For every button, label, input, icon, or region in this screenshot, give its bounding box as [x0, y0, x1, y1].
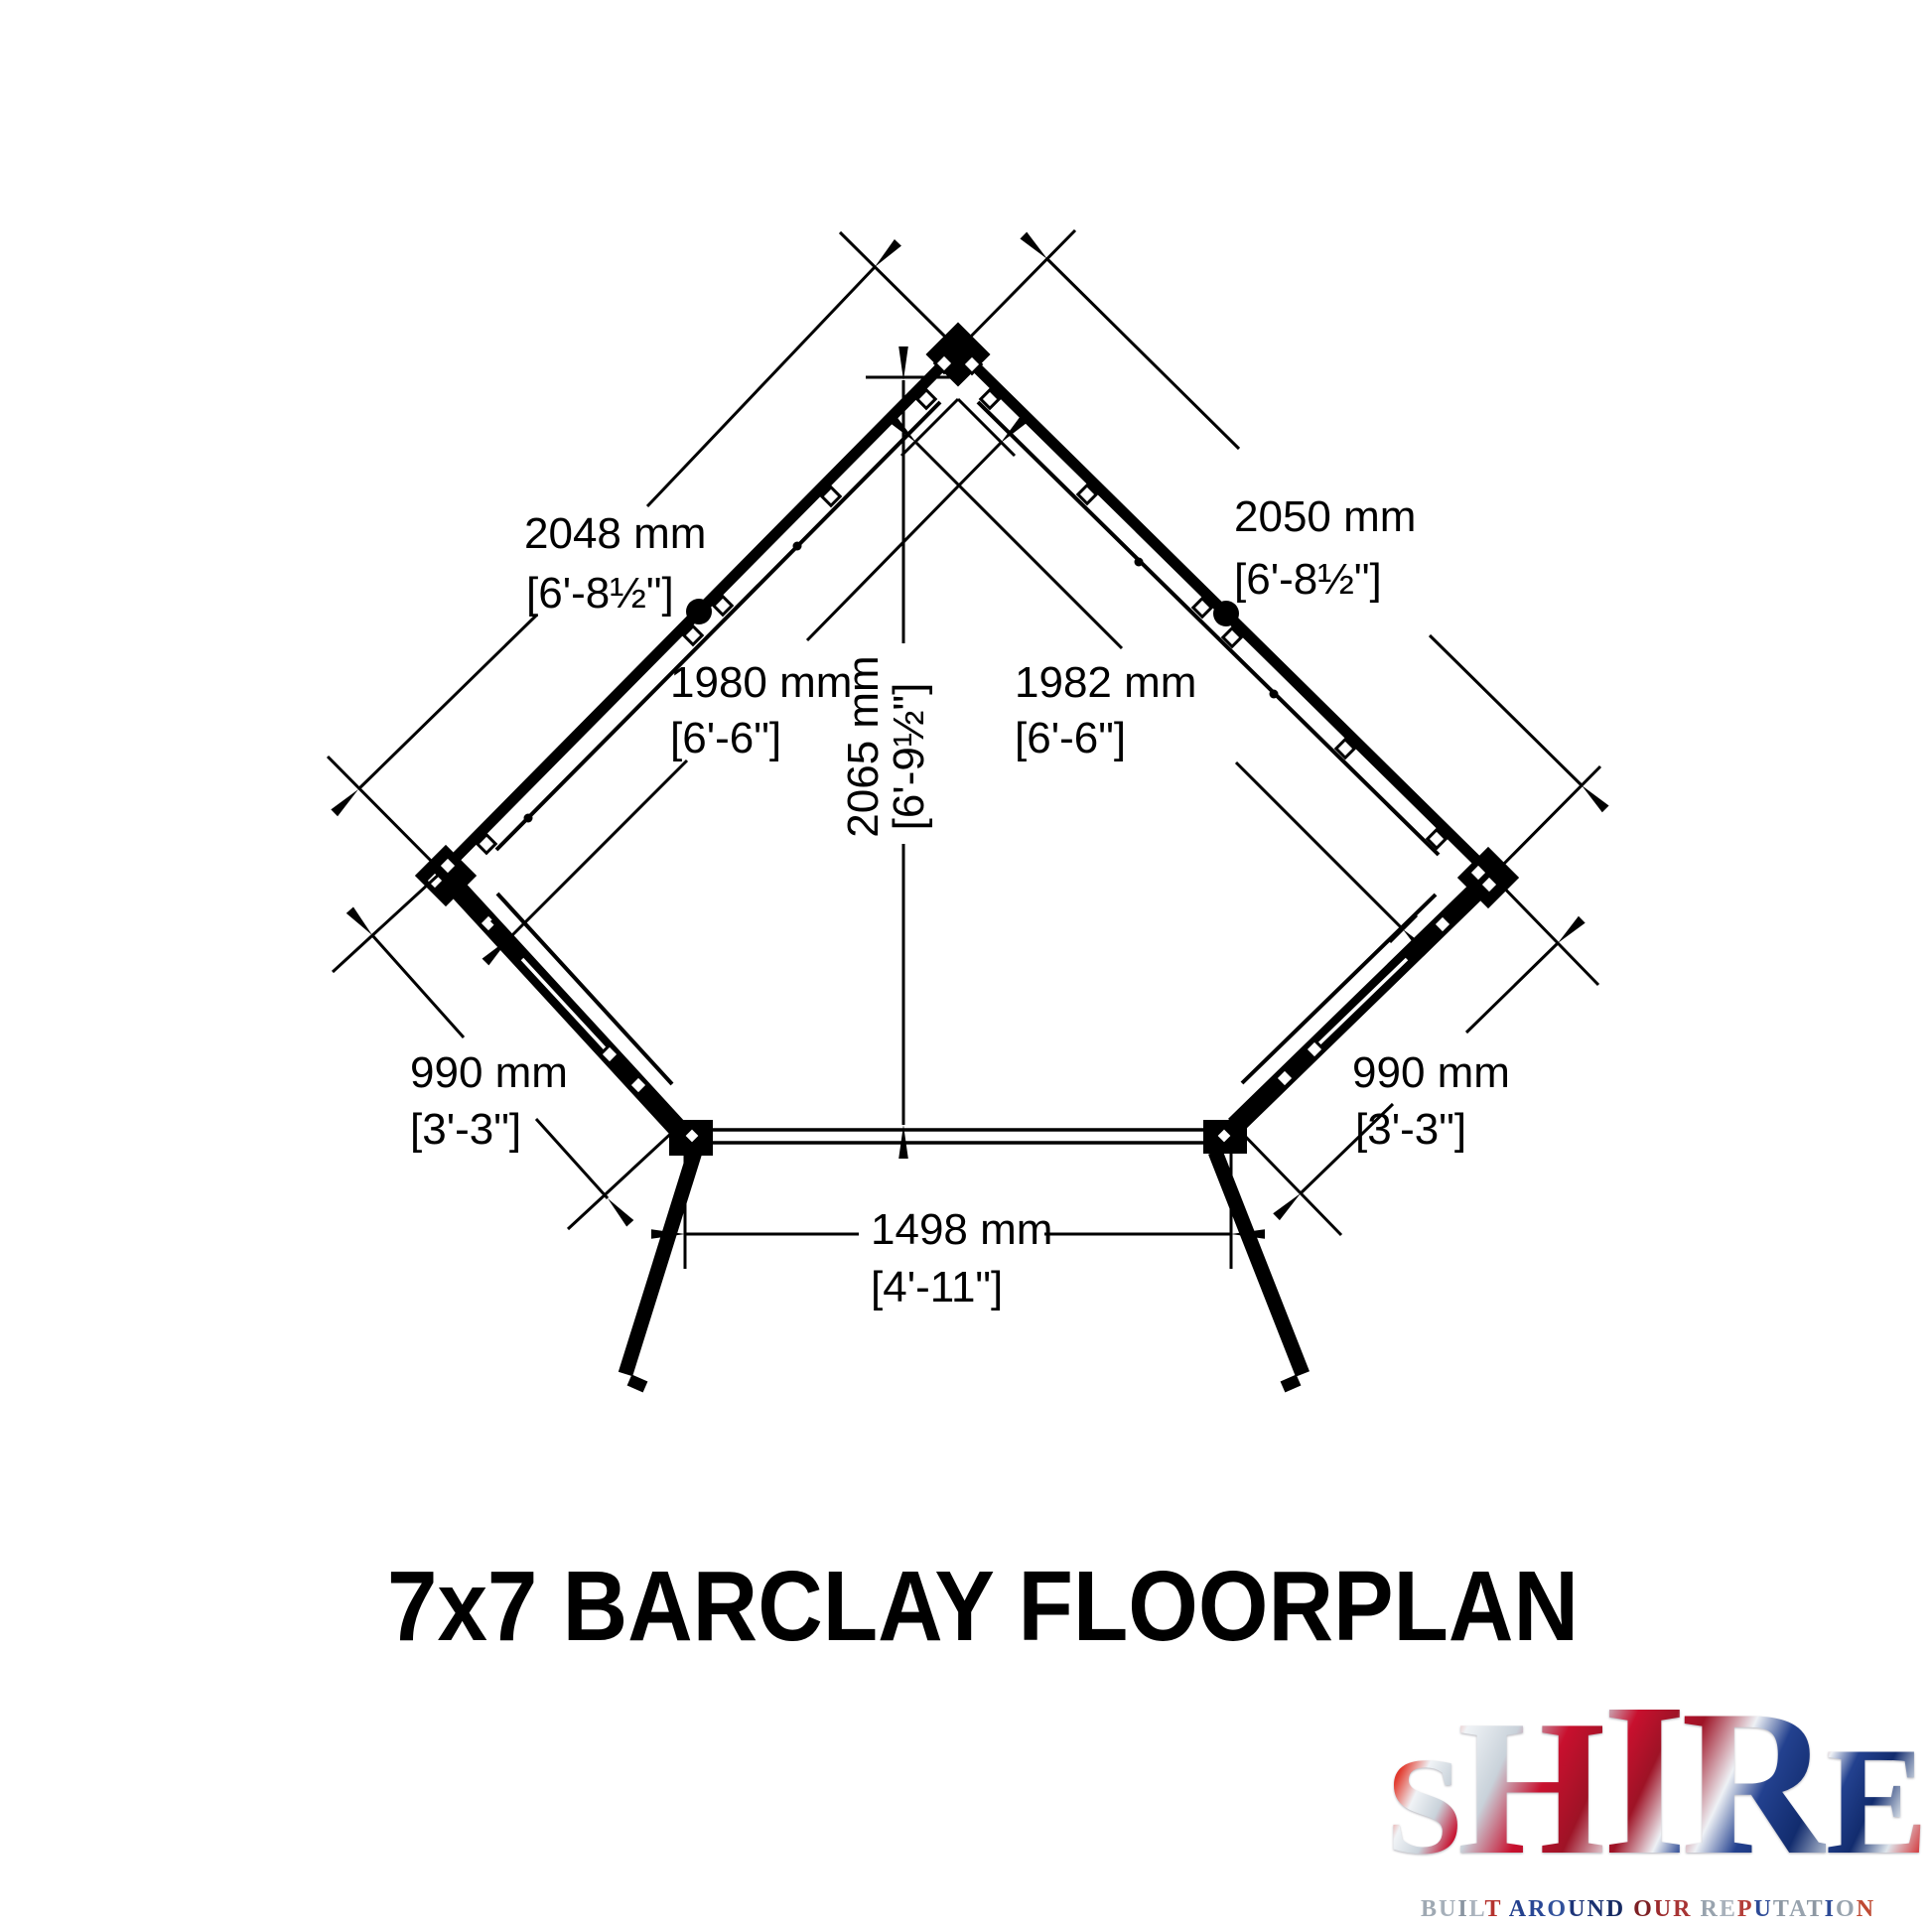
wall-joint-dot — [686, 599, 712, 624]
corner-squares — [426, 354, 1498, 894]
label-2065-mm: 2065 mm — [839, 655, 888, 837]
label-1982-mm: 1982 mm — [1015, 658, 1196, 707]
label-2050-mm: 2050 mm — [1234, 492, 1416, 541]
page: 2048 mm [6'-8½"] 2050 mm [6'-8½"] 1980 m… — [0, 0, 1932, 1932]
logo-letter-i: I — [1602, 1658, 1682, 1900]
label-2050-ft: [6'-8½"] — [1234, 555, 1382, 604]
label-1980-mm: 1980 mm — [670, 658, 852, 707]
logo-letter-h: H — [1457, 1681, 1602, 1895]
shire-logo: SHIRE BUILT AROUND OUR REPUTATION — [1386, 1670, 1910, 1923]
door-posts — [669, 1120, 1247, 1156]
wall-joint-dot — [1213, 601, 1239, 626]
floorplan-drawing: 2048 mm [6'-8½"] 2050 mm [6'-8½"] 1980 m… — [0, 0, 1932, 1932]
door-foot-right — [1283, 1380, 1299, 1387]
label-1982-ft: [6'-6"] — [1015, 714, 1126, 762]
wall-upper-right — [958, 349, 1492, 876]
logo-letter-s: S — [1386, 1729, 1457, 1883]
label-2048-ft: [6'-8½"] — [526, 569, 674, 618]
page-title: 7x7 BARCLAY FLOORPLAN — [387, 1551, 1579, 1662]
door-leaf-right — [1215, 1152, 1303, 1374]
door-foot-left — [629, 1380, 645, 1387]
logo-letter-r: R — [1681, 1668, 1826, 1898]
label-2048-mm: 2048 mm — [524, 509, 706, 558]
label-2065-ft: [6'-9½"] — [885, 683, 933, 831]
label-990L-ft: [3'-3"] — [410, 1105, 521, 1154]
logo-letter-e: E — [1826, 1716, 1922, 1886]
label-1498-mm: 1498 mm — [871, 1205, 1052, 1254]
dimension-labels: 2048 mm [6'-8½"] 2050 mm [6'-8½"] 1980 m… — [410, 492, 1510, 1311]
label-1498-ft: [4'-11"] — [871, 1263, 1003, 1311]
logo-tagline: BUILT AROUND OUR REPUTATION — [1386, 1896, 1910, 1923]
front-threshold — [707, 1130, 1207, 1143]
label-990L-mm: 990 mm — [410, 1048, 568, 1097]
label-990R-ft: [3'-3"] — [1355, 1105, 1466, 1154]
logo-word: SHIRE — [1386, 1670, 1910, 1888]
label-1980-ft: [6'-6"] — [670, 714, 781, 762]
dim-upper-right-outer — [958, 230, 1600, 876]
label-990R-mm: 990 mm — [1352, 1048, 1510, 1097]
wall-stud-squares — [981, 390, 1446, 848]
